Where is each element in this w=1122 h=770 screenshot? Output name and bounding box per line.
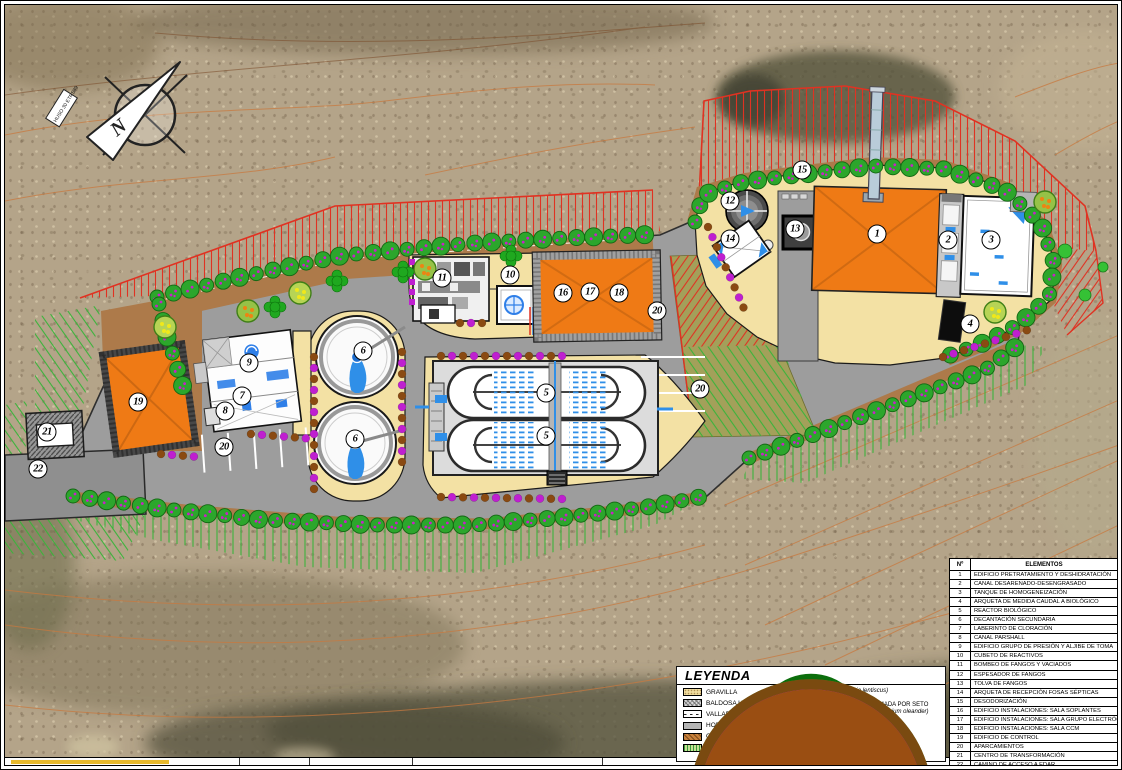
element-name: BOMBEO DE FANGOS Y VACIADOS [971,661,1117,669]
plan-label-14: 14 [721,230,740,249]
lavanda-shrub [991,336,999,344]
plan-label-20: 20 [215,438,234,457]
hedge-tree [1045,252,1061,268]
lavanda-shrub [310,408,318,416]
plan-label-11: 11 [433,269,452,288]
legend-box: LEYENDA GRAVILLABALDOSA HIDRÁULICAVALLAD… [676,666,946,762]
plan-label-5: 5 [537,384,556,403]
titleblock-divider [412,758,413,765]
romero-shrub [310,419,318,427]
hedge-tree [640,499,656,515]
lentisco-tree [506,251,516,261]
romero-shrub [310,463,318,471]
elements-table-row: 13TOLVA DE FANGOS [950,680,1117,689]
element-number: 22 [950,761,971,766]
lavanda-shrub [398,403,406,411]
plan-label-10: 10 [501,266,520,285]
romero-shrub [713,243,721,251]
hedge-tree [183,504,199,520]
hedge-tree [504,513,522,531]
element-number: 12 [950,671,971,679]
romero-shrub [731,283,739,291]
plan-label-5: 5 [537,427,556,446]
element-name: EDIFICIO GRUPO DE PRESIÓN Y ALJIBE DE TO… [971,643,1117,651]
hedge-tree [850,159,868,177]
lavanda-shrub [717,253,725,261]
romero-shrub [503,494,511,502]
plan-label-3: 3 [982,231,1001,250]
hedge-tree [1006,339,1024,357]
lavanda-shrub [398,447,406,455]
lavanda-shrub [409,259,415,265]
hedge-tree [690,489,706,505]
element-name: TOLVA DE FANGOS [971,680,1117,688]
romero-shrub [1023,326,1031,334]
element-number: 17 [950,716,971,724]
lavanda-shrub [492,352,500,360]
hedge-tree [675,494,689,508]
hedge-tree [853,409,869,425]
hedge-tree [281,258,299,276]
hedge-tree [165,346,179,360]
hedge-tree [467,235,483,251]
elements-table-header: Nº ELEMENTOS [950,559,1117,571]
limonero-tree [984,301,1006,323]
plan-label-13: 13 [786,220,805,239]
legend-icon-romero [791,759,803,766]
hedge-tree [688,215,702,229]
element-name: APARCAMIENTOS [971,743,1117,751]
element-number: 16 [950,707,971,715]
romero-shrub [459,352,467,360]
reactors-5 [415,361,673,485]
plan-label-8: 8 [216,402,235,421]
hedge-tree [818,165,832,179]
elements-table-row: 4ARQUETA DE MEDIDA CAUDAL A BIOLÓGICO [950,598,1117,607]
building-19-control [103,344,196,454]
hedge-tree [969,173,983,187]
elements-table-row: 8CANAL PARSHALL [950,634,1117,643]
romero-shrub [247,430,255,438]
element-number: 14 [950,689,971,697]
hedge-tree [299,256,313,270]
romero-shrub [398,414,406,422]
element-number: 15 [950,698,971,706]
hedge-tree [656,495,674,513]
element-number: 8 [950,634,971,642]
element-number: 13 [950,680,971,688]
element-number: 10 [950,652,971,660]
romero-shrub [481,494,489,502]
hedge-tree [215,273,231,289]
hedge-tree [733,175,749,191]
element-number: 20 [950,743,971,751]
element-number: 21 [950,752,971,760]
hedge-tree [453,516,471,534]
hedge-tree [742,451,756,465]
lavanda-shrub [310,474,318,482]
lavanda-shrub [735,293,743,301]
lavanda-shrub [448,352,456,360]
hedge-tree [483,233,501,251]
plan-label-6: 6 [346,430,365,449]
lavanda-shrub [310,386,318,394]
hedge-tree [386,517,402,533]
lavanda-shrub [558,352,566,360]
romero-shrub [459,493,467,501]
plan-sheet: { "compass": { "label": "N", "datum_labe… [0,0,1122,770]
romero-shrub [310,485,318,493]
hedge-tree [920,161,934,175]
lavanda-shrub [310,452,318,460]
limonero-tree [289,282,311,304]
elements-table-row: 7LABERINTO DE CLORACIÓN [950,625,1117,634]
hedge-tree [1034,219,1052,237]
plan-label-20: 20 [648,302,667,321]
element-name: EDIFICIO INSTALACIONES: SALA CCM [971,725,1117,733]
naranjo-tree [237,300,259,322]
hedge-tree [315,252,331,268]
romero-shrub [398,436,406,444]
lavanda-shrub [409,289,415,295]
lavanda-shrub [726,273,734,281]
elements-table-col-num: Nº [950,559,971,570]
hedge-tree [167,503,181,517]
plan-label-6: 6 [354,342,373,361]
elements-table-row: 5REACTOR BIOLÓGICO [950,607,1117,616]
element-name: CENTRO DE TRANSFORMACIÓN [971,752,1117,760]
elements-table-row: 6DECANTACIÓN SECUNDARIA [950,616,1117,625]
hedge-tree [518,232,534,248]
hedge-tree [1042,287,1056,301]
element-number: 1 [950,571,971,579]
hedge-tree [472,518,486,532]
romero-shrub [398,370,406,378]
hedge-tree [757,444,773,460]
elements-table-row: 3TANQUE DE HOMOGENEIZACIÓN [950,589,1117,598]
legend-plants-column: LENTISCO (Pistacia lentiscus)PANTALLA VE… [791,688,941,766]
lavanda-shrub [536,352,544,360]
plan-label-18: 18 [610,284,629,303]
plan-label-20: 20 [691,380,710,399]
hedge-tree [335,516,351,532]
element-number: 2 [950,580,971,588]
hedge-tree [590,505,606,521]
element-name: LABERINTO DE CLORACIÓN [971,625,1117,633]
elements-table-row: 14ARQUETA DE RECEPCIÓN FOSAS SÉPTICAS [950,689,1117,698]
hedge-tree [66,489,80,503]
element-name: ARQUETA DE MEDIDA CAUDAL A BIOLÓGICO [971,598,1117,606]
elements-table-row: 11BOMBEO DE FANGOS Y VACIADOS [950,661,1117,670]
hedge-tree [790,433,804,447]
element-name: DECANTACIÓN SECUNDARIA [971,616,1117,624]
elements-table-row: 21CENTRO DE TRANSFORMACIÓN [950,752,1117,761]
element-number: 4 [950,598,971,606]
lavanda-shrub [470,352,478,360]
titleblock-divider [309,758,310,765]
lavanda-shrub [168,451,176,459]
hedge-tree [604,229,618,243]
lavanda-shrub [970,343,978,351]
romero-shrub [547,495,555,503]
hedge-tree [901,158,919,176]
lentisco-tree [398,267,408,277]
hedge-tree [820,420,838,438]
romero-shrub [704,223,712,231]
hedge-tree [981,361,995,375]
element-name: EDIFICIO DE CONTROL [971,734,1117,742]
element-name: ESPESADOR DE FANGOS [971,671,1117,679]
hedge-tree [998,183,1016,201]
hedge-tree [534,230,552,248]
hedge-tree [555,508,573,526]
hedge-tree [868,402,886,420]
elements-table-row: 10CUBETO DE REACTIVOS [950,652,1117,661]
lavanda-shrub [514,352,522,360]
lavanda-shrub [190,453,198,461]
legend-plant-item: ROMERO (Rosmarinus Officinalis) [791,760,941,766]
hedge-tree [319,516,333,530]
hedge-tree [265,262,281,278]
plan-label-7: 7 [233,387,252,406]
titleblock-yellow-bar [11,760,169,764]
elements-table-row: 1EDIFICIO PRETRATAMIENTO Y DESHIDRATACIÓ… [950,571,1117,580]
lavanda-shrub [708,233,716,241]
hedge-tree [636,226,654,244]
element-number: 5 [950,607,971,615]
hedge-tree [749,171,767,189]
hedge-tree [768,171,782,185]
plan-label-19: 19 [129,393,148,412]
hedge-tree [174,377,192,395]
hedge-tree [351,515,369,533]
hedge-tree [1013,197,1027,211]
elements-table-row: 12ESPESADOR DE FANGOS [950,671,1117,680]
hedge-tree [170,361,186,377]
hedge-tree [805,426,821,442]
element-number: 18 [950,725,971,733]
element-name: CANAL DESARENADO-DESENGRASADO [971,580,1117,588]
romero-shrub [310,397,318,405]
hedge-tree [82,490,98,506]
element-name: EDIFICIO INSTALACIONES: SALA SOPLANTES [971,707,1117,715]
elements-table-row: 9EDIFICIO GRUPO DE PRESIÓN Y ALJIBE DE T… [950,643,1117,652]
hedge-tree [300,513,318,531]
hedge-tree [98,492,116,510]
romero-shrub [722,263,730,271]
lavanda-shrub [536,495,544,503]
hedge-tree [900,391,916,407]
hedge-tree [268,513,282,527]
element-name: EDIFICIO PRETRATAMIENTO Y DESHIDRATACIÓN [971,571,1117,579]
hedge-tree [488,515,504,531]
hedge-tree [574,508,588,522]
plan-label-21: 21 [38,423,57,442]
hedge-tree [569,230,585,246]
hedge-tree [132,498,148,514]
element-name: ARQUETA DE RECEPCIÓN FOSAS SÉPTICAS [971,689,1117,697]
hedge-tree [948,373,964,389]
hedge-tree [349,247,363,261]
hedge-tree [834,162,850,178]
hedge-tree [231,268,249,286]
romero-shrub [981,340,989,348]
site-plan-map: N HUSO 30 ETRS89 12345566789101112131415… [4,4,1118,766]
hedge-tree [451,238,465,252]
romero-shrub [398,348,406,356]
lavanda-shrub [409,299,415,305]
hedge-tree [402,516,420,534]
lentisco-tree [332,276,342,286]
romero-shrub [478,319,486,327]
plan-label-2: 2 [939,231,958,250]
plan-label-1: 1 [868,225,887,244]
plan-label-17: 17 [581,283,600,302]
lavanda-shrub [1012,330,1020,338]
hedge-tree [620,227,636,243]
romero-shrub [437,352,445,360]
romero-shrub [939,353,947,361]
hedge-tree [1017,309,1035,327]
titleblock-divider [602,758,603,765]
hedge-tree [166,285,182,301]
element-name: DESODORIZACIÓN [971,698,1117,706]
elements-table: Nº ELEMENTOS 1EDIFICIO PRETRATAMIENTO Y … [949,558,1118,766]
hedge-tree [700,184,718,202]
romero-shrub [481,352,489,360]
elements-table-row: 18EDIFICIO INSTALACIONES: SALA CCM [950,725,1117,734]
hedge-tree [838,416,852,430]
hedge-tree [885,398,899,412]
hedge-tree [437,517,453,533]
element-name: EDIFICIO INSTALACIONES: SALA GRUPO ELECT… [971,716,1117,724]
romero-shrub [739,304,747,312]
titleblock-divider [239,758,240,765]
romero-shrub [525,494,533,502]
hedge-tree [984,177,1000,193]
lavanda-shrub [409,279,415,285]
hedge-tree [963,366,981,384]
element-number: 6 [950,616,971,624]
lavanda-shrub [302,434,310,442]
lavanda-shrub [310,430,318,438]
plan-label-15: 15 [793,161,812,180]
hedge-tree [365,244,381,260]
romero-shrub [310,375,318,383]
romero-shrub [525,352,533,360]
elements-table-row: 20APARCAMIENTOS [950,743,1117,752]
elements-table-col-name: ELEMENTOS [971,559,1117,570]
hedge-tree [951,165,969,183]
hedge-tree [200,278,214,292]
hedge-tree [148,499,166,517]
lavanda-shrub [310,364,318,372]
hedge-tree [625,502,639,516]
element-number: 11 [950,661,971,669]
hedge-tree [152,297,166,311]
lavanda-shrub [398,381,406,389]
hedge-tree [381,242,399,260]
element-name: TANQUE DE HOMOGENEIZACIÓN [971,589,1117,597]
lavanda-shrub [470,494,478,502]
lavanda-shrub [949,350,957,358]
elements-table-row: 17EDIFICIO INSTALACIONES: SALA GRUPO ELE… [950,716,1117,725]
lavanda-shrub [258,431,266,439]
hedge-tree [933,380,947,394]
romero-shrub [291,433,299,441]
elements-table-row: 15DESODORIZACIÓN [950,698,1117,707]
romero-shrub [310,441,318,449]
hedge-tree [915,384,933,402]
building-9-complex [191,330,301,434]
romero-shrub [503,352,511,360]
hedge-tree [606,502,624,520]
lavanda-shrub [467,319,475,327]
hedge-tree [432,237,450,255]
plan-label-22: 22 [29,460,48,479]
hedge-tree [772,437,790,455]
hedge-tree [250,510,268,528]
element-number: 7 [950,625,971,633]
hedge-tree [400,242,414,256]
hedge-tree [416,240,432,256]
elements-table-body: 1EDIFICIO PRETRATAMIENTO Y DESHIDRATACIÓ… [950,571,1117,766]
romero-shrub [269,432,277,440]
plan-label-4: 4 [961,315,980,334]
element-number: 9 [950,643,971,651]
element-name: CAMINO DE ACCESO A EDAR [971,761,1117,766]
lobe-road-marks [782,194,807,199]
hedge-tree [1043,268,1061,286]
romero-shrub [179,452,187,460]
hedge-tree [421,518,435,532]
elements-table-row: 16EDIFICIO INSTALACIONES: SALA SOPLANTES [950,707,1117,716]
lavanda-shrub [558,495,566,503]
romero-shrub [398,392,406,400]
hedge-tree [199,505,217,523]
romero-shrub [157,450,165,458]
hedge-tree [284,513,300,529]
romero-shrub [547,352,555,360]
romero-shrub [437,493,445,501]
hedge-tree [370,518,384,532]
romero-shrub [398,458,406,466]
elements-table-row: 22CAMINO DE ACCESO A EDAR [950,761,1117,766]
limonero-tree [154,316,176,338]
elements-table-row: 19EDIFICIO DE CONTROL [950,734,1117,743]
element-number: 19 [950,734,971,742]
hedge-tree [585,228,603,246]
lavanda-shrub [514,494,522,502]
elements-table-row: 2CANAL DESARENADO-DESENGRASADO [950,580,1117,589]
romero-shrub [310,353,318,361]
romero-shrub [456,319,464,327]
hedge-tree [181,280,199,298]
hedge-tree [116,496,130,510]
plan-label-12: 12 [721,192,740,211]
element-number: 3 [950,589,971,597]
plan-label-9: 9 [240,354,259,373]
lavanda-shrub [398,425,406,433]
hedge-tree [330,247,348,265]
element-name: CANAL PARSHALL [971,634,1117,642]
lentisco-tree [270,302,280,312]
hedge-tree [885,159,901,175]
element-name: REACTOR BIOLÓGICO [971,607,1117,615]
hedge-tree [936,161,952,177]
naranjo-tree [1034,191,1056,213]
lavanda-shrub [492,494,500,502]
